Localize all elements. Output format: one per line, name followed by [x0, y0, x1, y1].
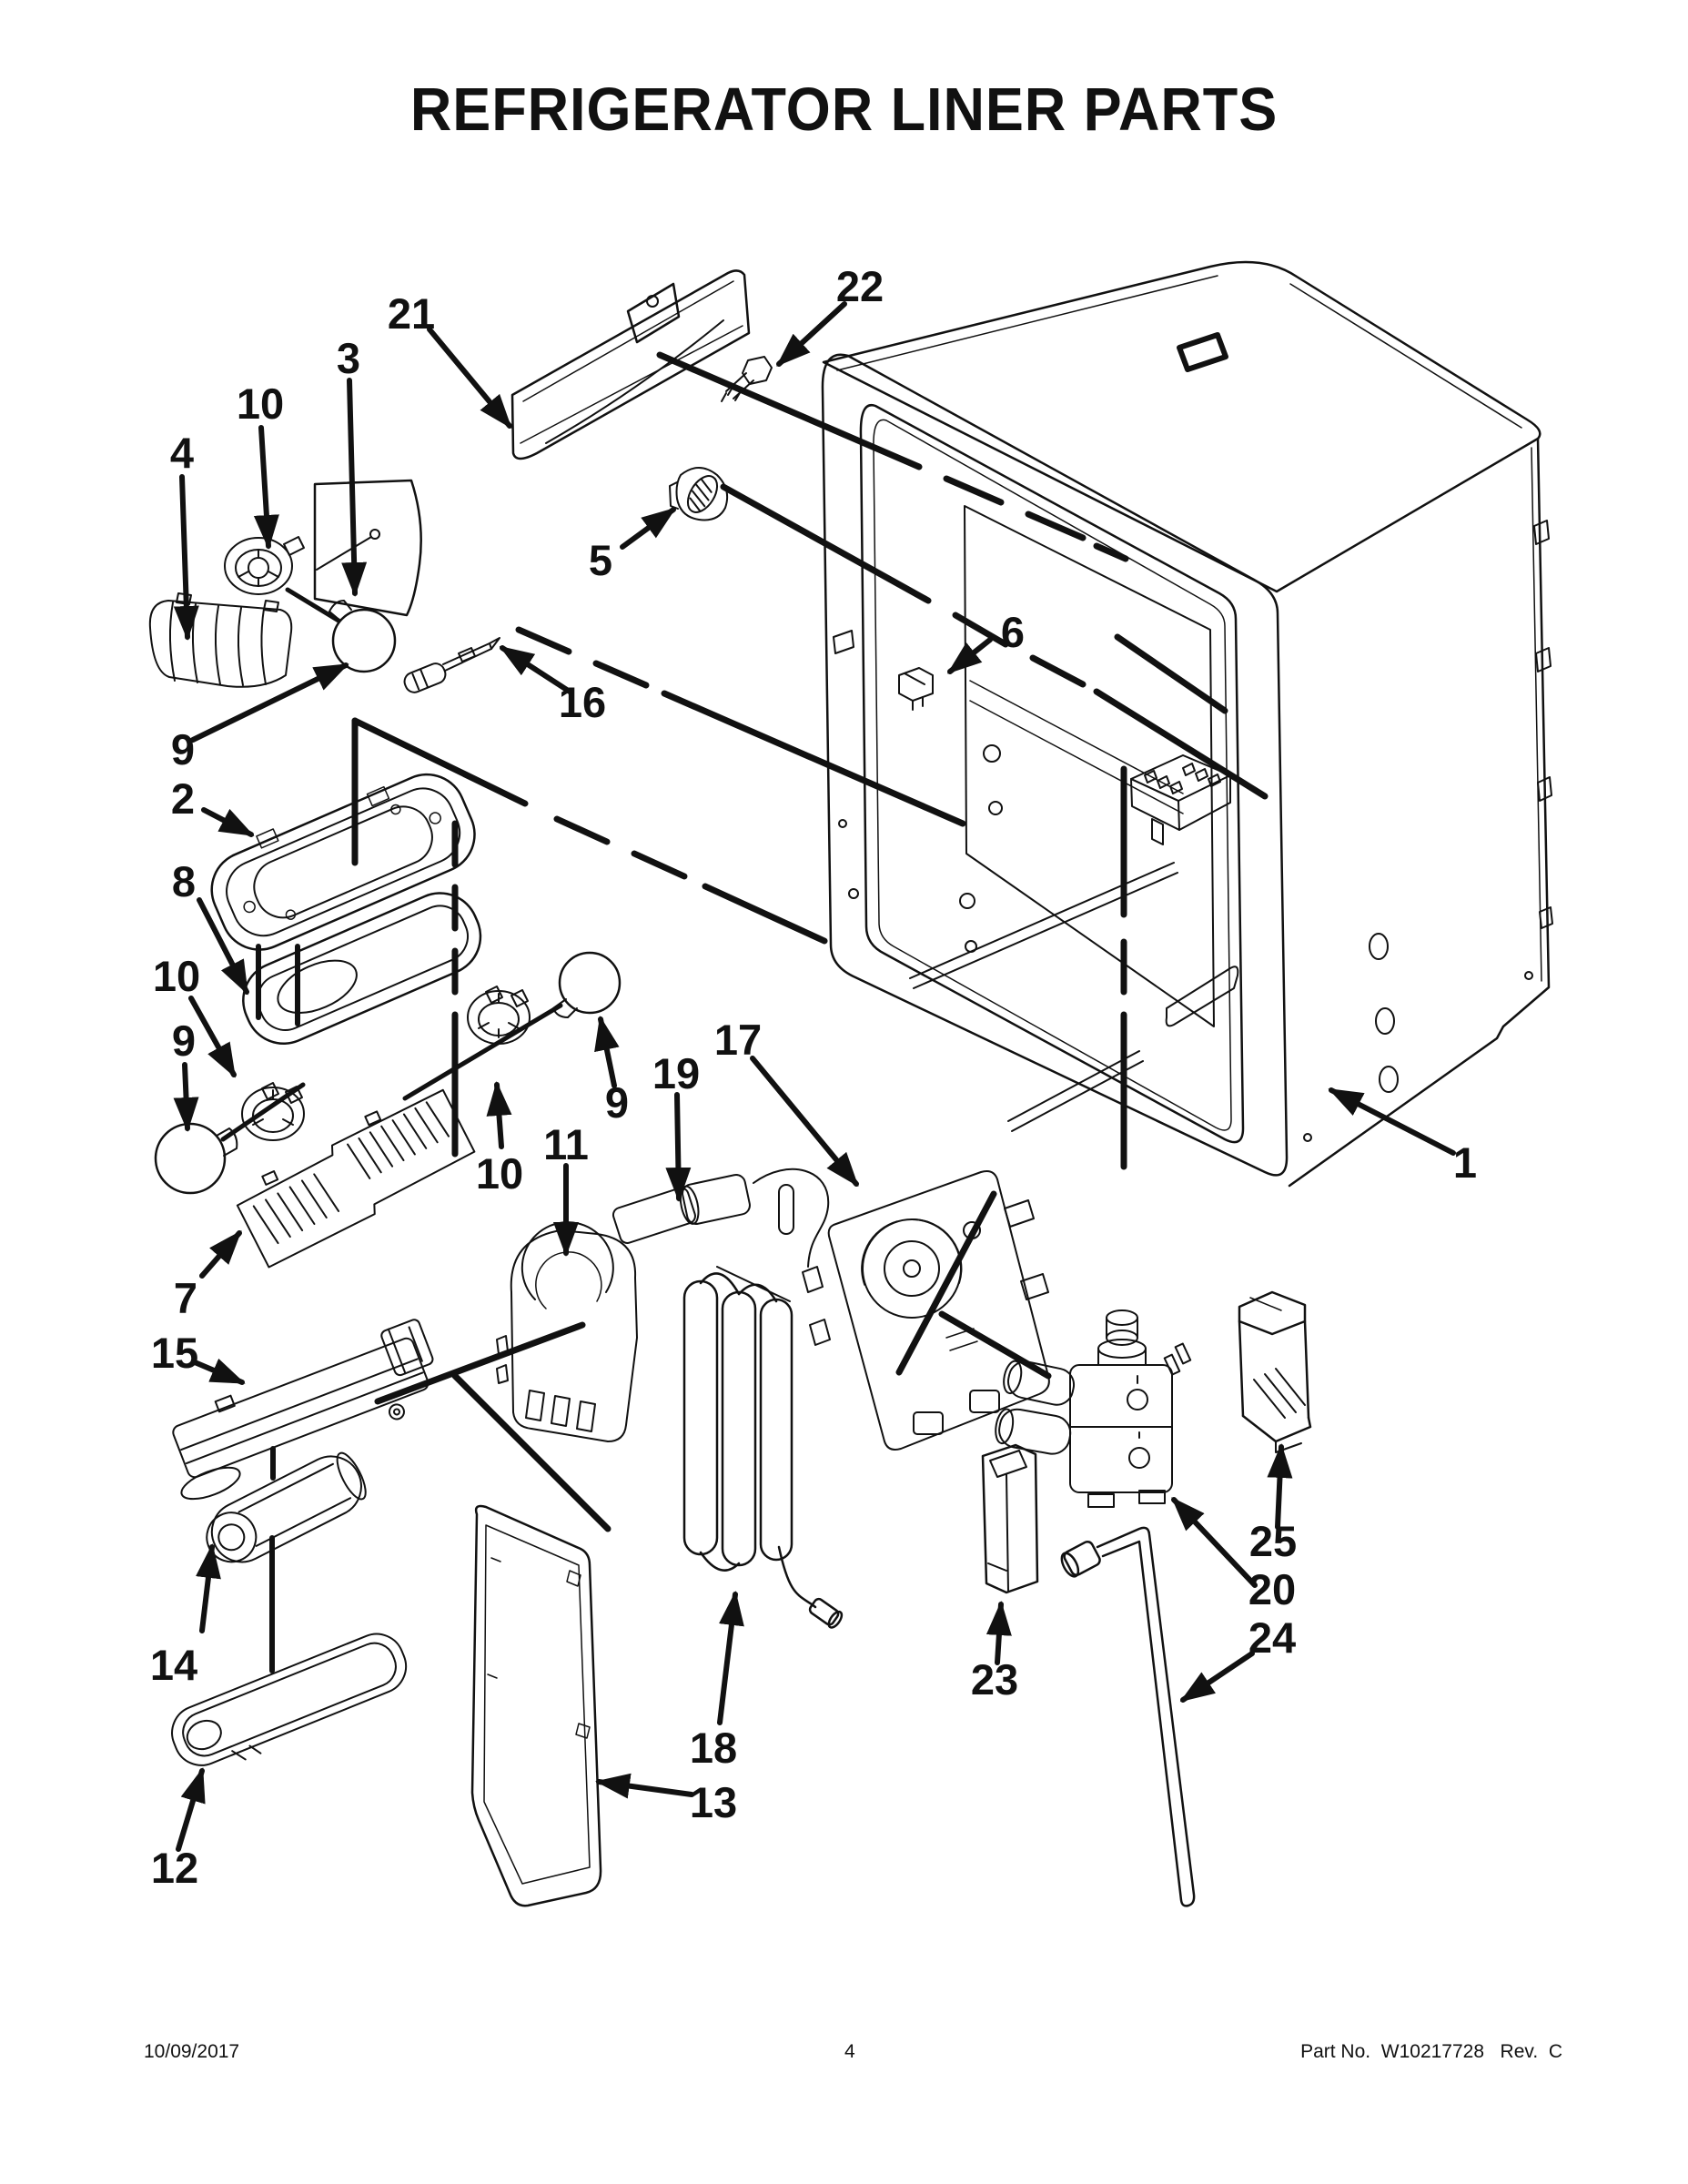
- callout-4: 4: [170, 429, 194, 477]
- callout-7-arrow: [202, 1233, 239, 1276]
- callout-10a-arrow: [261, 428, 268, 546]
- callout-16: 16: [559, 678, 606, 726]
- callout-21-arrow: [430, 329, 510, 426]
- callout-10c: 10: [476, 1149, 523, 1198]
- callout-13-arrow: [599, 1782, 692, 1795]
- part-10-bulb-socket-center: [468, 986, 530, 1044]
- callout-15-arrow: [195, 1362, 242, 1382]
- callout-10a: 10: [237, 379, 284, 428]
- refrigerator-cabinet: [823, 262, 1552, 1186]
- callout-10b-arrow: [191, 998, 234, 1075]
- callout-9c-arrow: [601, 1019, 614, 1086]
- callout-6-arrow: [950, 640, 990, 672]
- part-9-bulb-center: [553, 953, 620, 1017]
- callout-24-arrow: [1183, 1653, 1252, 1700]
- callout-13: 13: [690, 1778, 737, 1826]
- callout-5-arrow: [622, 510, 673, 547]
- part-20-water-valve: [993, 1310, 1193, 1507]
- part-4-light-lens-cover: [150, 593, 291, 687]
- part-2-light-housing: [197, 755, 487, 962]
- callout-7: 7: [174, 1274, 197, 1322]
- part-3-panel: [315, 480, 421, 615]
- callout-9a: 9: [171, 725, 195, 773]
- callout-23: 23: [971, 1655, 1018, 1704]
- footer-part-number: Part No. W10217728 Rev. C: [1300, 2041, 1562, 2063]
- footer-page-number: 4: [844, 2041, 855, 2063]
- callout-9c: 9: [605, 1078, 629, 1127]
- part-25-bracket: [1239, 1292, 1310, 1452]
- callout-17-arrow: [753, 1058, 856, 1184]
- exploded-parts-diagram: 21 22 3 10 4 5 6 16 9 2 8 10 9 7 15 10 1…: [0, 0, 1688, 2184]
- callout-6: 6: [1001, 608, 1025, 656]
- callout-25-arrow: [1278, 1447, 1281, 1527]
- callout-labels: 21 22 3 10 4 5 6 16 9 2 8 10 9 7 15 10 1…: [150, 262, 1477, 1892]
- part-13-access-panel: [472, 1506, 601, 1906]
- document-page: REFRIGERATOR LINER PARTS: [0, 0, 1688, 2184]
- callout-5: 5: [589, 536, 612, 584]
- callout-1: 1: [1453, 1138, 1477, 1187]
- callout-8-arrow: [199, 900, 247, 992]
- part-9-bulb-left: [156, 1124, 237, 1193]
- part-16-tool: [402, 638, 500, 695]
- callout-8: 8: [172, 857, 196, 905]
- explosion-lines: [223, 355, 1265, 1671]
- callout-24: 24: [1248, 1613, 1296, 1662]
- part-17-control-housing: [803, 1171, 1049, 1450]
- callout-15: 15: [151, 1329, 198, 1377]
- callout-9b: 9: [172, 1016, 196, 1065]
- part-5-grommet: [670, 468, 727, 520]
- callout-2-arrow: [204, 810, 251, 834]
- part-19-thermostat: [612, 1169, 828, 1267]
- callout-14: 14: [150, 1641, 197, 1689]
- callout-12-arrow: [178, 1771, 202, 1849]
- part-23-bracket: [983, 1445, 1037, 1592]
- callout-25: 25: [1249, 1517, 1297, 1565]
- callout-14-arrow: [202, 1547, 212, 1631]
- callout-20: 20: [1248, 1565, 1296, 1613]
- callout-22: 22: [836, 262, 884, 310]
- footer-date: 10/09/2017: [144, 2041, 239, 2063]
- part-12-tray: [164, 1626, 418, 1783]
- callout-10b: 10: [153, 952, 200, 1000]
- part-6-clip: [899, 668, 933, 710]
- part-14-water-filter: [196, 1445, 373, 1575]
- callout-10c-arrow: [497, 1085, 501, 1147]
- callout-12: 12: [151, 1844, 198, 1892]
- callout-20-arrow: [1174, 1500, 1255, 1585]
- callout-3-arrow: [349, 380, 355, 593]
- callout-18-arrow: [720, 1594, 735, 1723]
- callout-9a-arrow: [193, 665, 346, 740]
- callout-23-arrow: [997, 1604, 1001, 1663]
- callout-2: 2: [171, 774, 195, 823]
- callout-21: 21: [388, 289, 435, 338]
- callout-17: 17: [714, 1016, 762, 1064]
- part-21-trim-rail: [512, 270, 749, 459]
- part-10-bulb-socket-upper: [225, 537, 304, 594]
- callout-19-arrow: [677, 1095, 679, 1198]
- callout-11: 11: [543, 1120, 589, 1168]
- callout-4-arrow: [182, 477, 187, 637]
- callout-9b-arrow: [185, 1065, 187, 1128]
- callout-19: 19: [652, 1049, 700, 1097]
- part-24-water-tube: [1058, 1528, 1194, 1906]
- callout-3: 3: [337, 334, 360, 382]
- callout-18: 18: [690, 1724, 737, 1772]
